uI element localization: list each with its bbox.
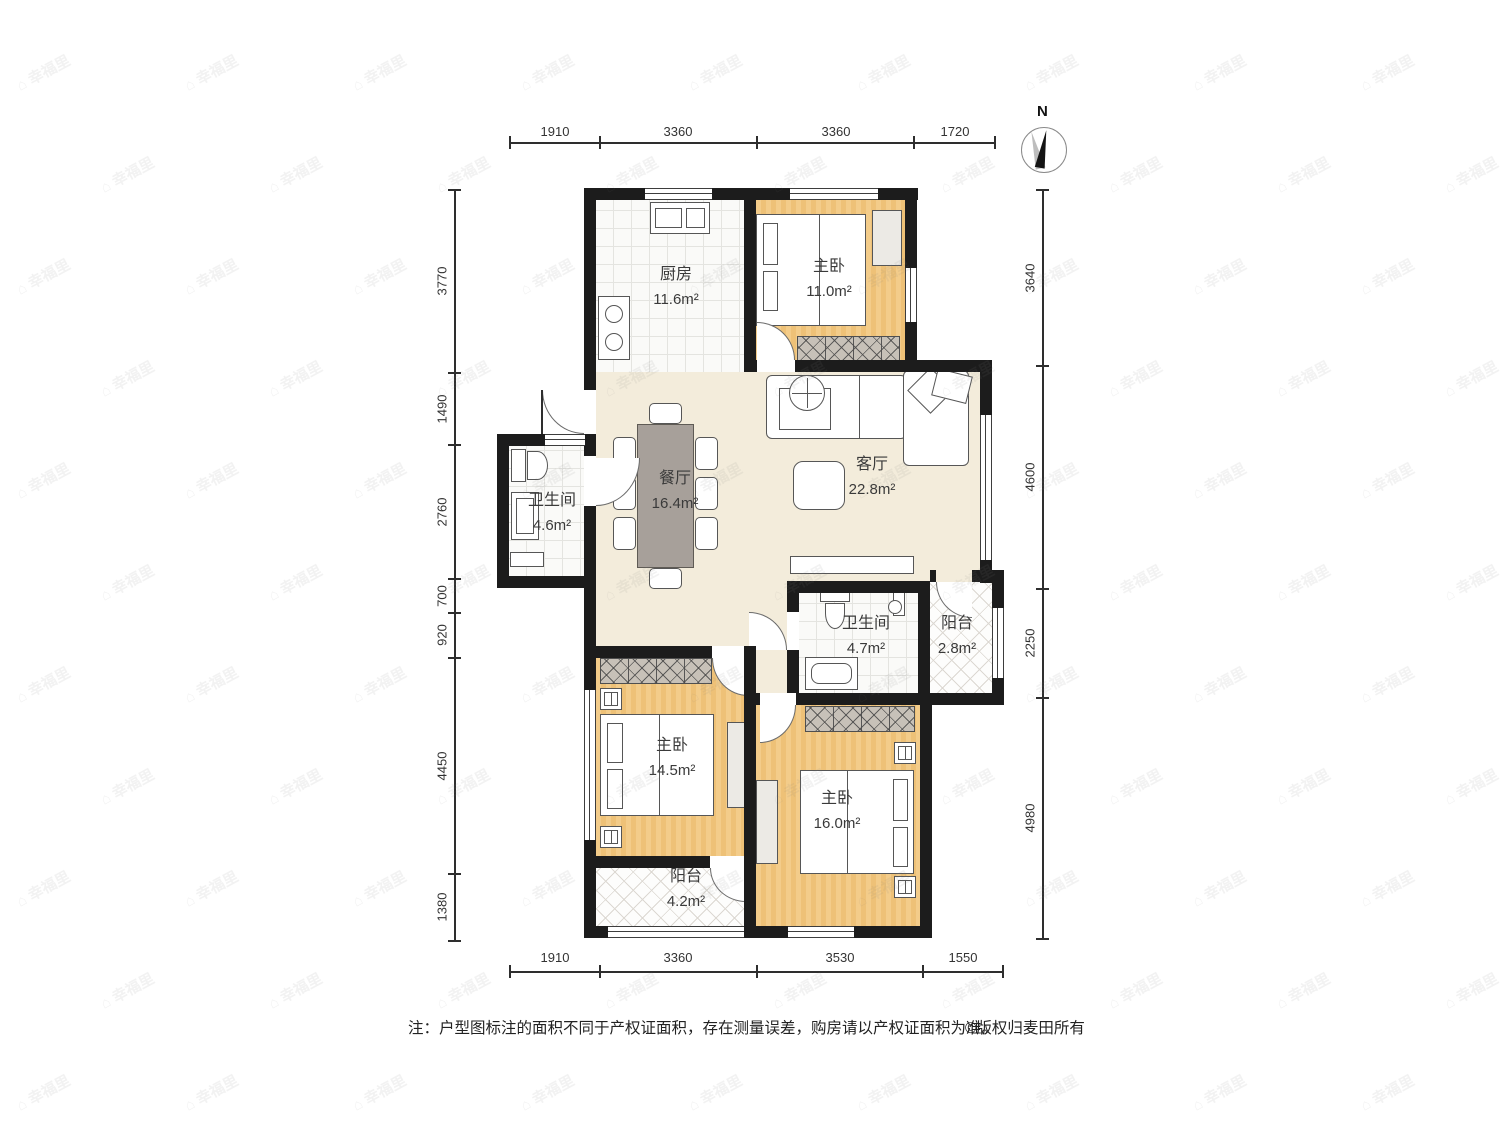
watermark-logo: ⌂ 幸福里 — [96, 356, 157, 402]
watermark-logo: ⌂ 幸福里 — [1272, 356, 1333, 402]
watermark-logo: ⌂ 幸福里 — [684, 1070, 745, 1116]
dim-line-left — [454, 190, 456, 941]
room-name: 阳台 — [667, 868, 705, 886]
window — [905, 268, 917, 322]
dim-tick — [1036, 588, 1049, 590]
wall — [918, 581, 930, 693]
toilet-icon — [511, 449, 526, 482]
dim-tick — [448, 189, 461, 191]
wall — [992, 570, 1004, 608]
watermark-logo: ⌂ 幸福里 — [936, 764, 997, 810]
room-label-bath-main: 卫生间 4.6m² — [528, 492, 576, 534]
watermark-logo: ⌂ 幸福里 — [264, 968, 325, 1014]
watermark-logo: ⌂ 幸福里 — [12, 458, 73, 504]
disclaimer-note: 注：户型图标注的面积不同于产权证面积，存在测量误差，购房请以产权证面积为准。 — [408, 1016, 997, 1038]
dim-tick — [599, 965, 601, 978]
room-area: 11.0m² — [806, 283, 852, 300]
watermark-logo: ⌂ 幸福里 — [264, 560, 325, 606]
dim-label: 3640 — [1023, 264, 1038, 293]
watermark-logo: ⌂ 幸福里 — [936, 968, 997, 1014]
watermark-logo: ⌂ 幸福里 — [768, 968, 829, 1014]
room-name: 客厅 — [849, 456, 896, 474]
watermark-logo: ⌂ 幸福里 — [12, 50, 73, 96]
watermark-logo: ⌂ 幸福里 — [1440, 560, 1500, 606]
plant-line — [792, 393, 822, 394]
floor-plan-image: 厨房 11.6m² 主卧 11.0m² 客厅 22.8m² 餐厅 16.4m² … — [0, 0, 1500, 1125]
window — [980, 415, 992, 560]
room-name: 厨房 — [653, 266, 699, 284]
dim-label: 3360 — [664, 950, 693, 965]
watermark-logo: ⌂ 幸福里 — [1356, 1070, 1417, 1116]
room-name: 主卧 — [649, 737, 696, 755]
wall — [584, 188, 596, 390]
watermark-logo: ⌂ 幸福里 — [1104, 560, 1165, 606]
chair-icon — [695, 437, 718, 470]
coffee-table-icon — [793, 461, 845, 510]
room-label-bedroom-right: 主卧 16.0m² — [814, 790, 861, 832]
wall — [497, 576, 596, 588]
watermark-logo: ⌂ 幸福里 — [1188, 50, 1249, 96]
wall — [744, 360, 757, 372]
dim-tick — [1036, 697, 1049, 699]
room-area: 4.7m² — [842, 640, 890, 657]
room-area: 4.6m² — [528, 517, 576, 534]
watermark-logo: ⌂ 幸福里 — [1440, 764, 1500, 810]
room-area: 14.5m² — [649, 762, 696, 779]
watermark-logo: ⌂ 幸福里 — [852, 50, 913, 96]
dim-label: 920 — [435, 624, 450, 646]
chair-icon — [695, 517, 718, 550]
compass-n-label: N — [1037, 103, 1048, 120]
watermark-logo: ⌂ 幸福里 — [1440, 968, 1500, 1014]
watermark-logo: ⌂ 幸福里 — [1188, 662, 1249, 708]
watermark-logo: ⌂ 幸福里 — [1272, 560, 1333, 606]
dim-label: 1380 — [435, 893, 450, 922]
watermark-logo: ⌂ 幸福里 — [1104, 152, 1165, 198]
dim-label: 1550 — [949, 950, 978, 965]
watermark-logo: ⌂ 幸福里 — [516, 254, 577, 300]
watermark-logo: ⌂ 幸福里 — [1188, 1070, 1249, 1116]
pillow — [763, 271, 778, 311]
wall — [744, 200, 756, 360]
sink-basin — [686, 208, 705, 228]
chair-icon — [649, 568, 682, 589]
dim-tick — [1002, 965, 1004, 978]
wall — [712, 188, 790, 200]
wall — [905, 322, 917, 360]
watermark-logo: ⌂ 幸福里 — [1440, 356, 1500, 402]
room-label-balcony-south: 阳台 4.2m² — [667, 868, 705, 910]
room-name: 阳台 — [938, 615, 976, 633]
room-label-bedroom-top: 主卧 11.0m² — [806, 258, 852, 300]
nightstand-icon — [894, 742, 916, 764]
watermark-logo: ⌂ 幸福里 — [96, 152, 157, 198]
watermark-logo: ⌂ 幸福里 — [516, 662, 577, 708]
room-label-balcony-east: 阳台 2.8m² — [938, 615, 976, 657]
window — [545, 434, 585, 446]
watermark-logo: ⌂ 幸福里 — [348, 458, 409, 504]
wall — [787, 581, 799, 612]
window — [790, 188, 878, 200]
wall — [787, 650, 799, 693]
room-name: 餐厅 — [652, 470, 699, 488]
watermark-logo: ⌂ 幸福里 — [1188, 254, 1249, 300]
nightstand-icon — [600, 688, 622, 710]
dim-tick — [509, 136, 511, 149]
room-area: 16.0m² — [814, 815, 861, 832]
room-area: 11.6m² — [653, 291, 699, 308]
watermark-logo: ⌂ 幸福里 — [1272, 152, 1333, 198]
room-label-living: 客厅 22.8m² — [849, 456, 896, 498]
room-area: 4.2m² — [667, 893, 705, 910]
dim-label: 700 — [435, 585, 450, 607]
dim-tick — [448, 612, 461, 614]
wardrobe-icon — [600, 658, 712, 684]
copyright-note: ©版权归麦田所有 — [965, 1016, 1085, 1038]
stove-icon — [598, 296, 630, 360]
watermark-logo: ⌂ 幸福里 — [96, 968, 157, 1014]
dim-label: 4600 — [1023, 463, 1038, 492]
burner — [605, 333, 623, 351]
wall — [744, 926, 788, 938]
washer-icon — [510, 552, 544, 567]
dim-tick — [994, 136, 996, 149]
dim-line-top — [510, 142, 995, 144]
dim-tick — [1036, 189, 1049, 191]
watermark-logo: ⌂ 幸福里 — [1188, 866, 1249, 912]
entry-door-leaf — [541, 390, 543, 434]
nightstand-icon — [894, 876, 916, 898]
watermark-logo: ⌂ 幸福里 — [432, 152, 493, 198]
pillow — [607, 723, 623, 763]
dim-label: 4450 — [435, 752, 450, 781]
wall — [930, 570, 936, 582]
room-name: 主卧 — [814, 790, 861, 808]
watermark-logo: ⌂ 幸福里 — [1104, 356, 1165, 402]
pillow — [763, 223, 778, 265]
wall — [746, 856, 756, 868]
chair-icon — [649, 403, 682, 424]
wall — [596, 646, 712, 658]
watermark-logo: ⌂ 幸福里 — [1020, 866, 1081, 912]
dim-tick — [1036, 365, 1049, 367]
watermark-logo: ⌂ 幸福里 — [180, 866, 241, 912]
closet-icon — [756, 780, 778, 864]
watermark-logo: ⌂ 幸福里 — [1356, 662, 1417, 708]
watermark-logo: ⌂ 幸福里 — [1188, 458, 1249, 504]
dim-label: 4980 — [1023, 804, 1038, 833]
sofa-divider — [859, 376, 860, 438]
watermark-logo: ⌂ 幸福里 — [852, 1070, 913, 1116]
wardrobe-icon — [797, 336, 900, 361]
room-name: 主卧 — [806, 258, 852, 276]
watermark-logo: ⌂ 幸福里 — [180, 50, 241, 96]
watermark-logo: ⌂ 幸福里 — [348, 866, 409, 912]
watermark-logo: ⌂ 幸福里 — [264, 152, 325, 198]
dim-label: 1720 — [941, 124, 970, 139]
burner — [605, 305, 623, 323]
wall — [920, 705, 932, 938]
dim-label: 3770 — [435, 267, 450, 296]
watermark-logo: ⌂ 幸福里 — [12, 1070, 73, 1116]
watermark-logo: ⌂ 幸福里 — [348, 254, 409, 300]
dim-tick — [756, 136, 758, 149]
watermark-logo: ⌂ 幸福里 — [1020, 50, 1081, 96]
dim-label: 1910 — [541, 124, 570, 139]
dim-label: 3360 — [822, 124, 851, 139]
wall — [584, 856, 710, 868]
watermark-logo: ⌂ 幸福里 — [1356, 50, 1417, 96]
sink-basin — [655, 208, 682, 228]
room-label-dining: 餐厅 16.4m² — [652, 470, 699, 512]
pillow — [893, 779, 908, 821]
watermark-logo: ⌂ 幸福里 — [1272, 968, 1333, 1014]
watermark-logo: ⌂ 幸福里 — [180, 662, 241, 708]
dim-tick — [448, 444, 461, 446]
watermark-logo: ⌂ 幸福里 — [1356, 458, 1417, 504]
wall — [744, 646, 756, 938]
watermark-logo: ⌂ 幸福里 — [1356, 254, 1417, 300]
nightstand-icon — [600, 826, 622, 848]
watermark-logo: ⌂ 幸福里 — [96, 764, 157, 810]
dim-tick — [509, 965, 511, 978]
watermark-logo: ⌂ 幸福里 — [12, 254, 73, 300]
wall — [905, 200, 917, 268]
dim-tick — [913, 136, 915, 149]
dim-tick — [448, 940, 461, 942]
watermark-logo: ⌂ 幸福里 — [1104, 968, 1165, 1014]
room-area: 2.8m² — [938, 640, 976, 657]
window — [584, 690, 596, 840]
watermark-logo: ⌂ 幸福里 — [516, 1070, 577, 1116]
wall — [584, 926, 608, 938]
dim-tick — [756, 965, 758, 978]
room-label-kitchen: 厨房 11.6m² — [653, 266, 699, 308]
watermark-logo: ⌂ 幸福里 — [684, 50, 745, 96]
wardrobe-icon — [805, 706, 915, 732]
wall — [584, 840, 596, 938]
dim-label: 1490 — [435, 395, 450, 424]
kitchen-sink-icon — [650, 202, 710, 234]
watermark-logo: ⌂ 幸福里 — [264, 764, 325, 810]
window — [788, 926, 854, 938]
bathtub-inner — [811, 663, 852, 684]
chair-icon — [613, 517, 636, 550]
room-area: 16.4m² — [652, 495, 699, 512]
watermark-logo: ⌂ 幸福里 — [432, 968, 493, 1014]
watermark-logo: ⌂ 幸福里 — [1356, 866, 1417, 912]
watermark-logo: ⌂ 幸福里 — [180, 254, 241, 300]
watermark-logo: ⌂ 幸福里 — [348, 50, 409, 96]
bathtub-icon — [805, 657, 858, 690]
wall — [918, 693, 1004, 705]
room-area: 22.8m² — [849, 481, 896, 498]
dim-label: 2250 — [1023, 629, 1038, 658]
watermark-logo: ⌂ 幸福里 — [348, 662, 409, 708]
dim-label: 3360 — [664, 124, 693, 139]
window — [645, 188, 712, 200]
dim-tick — [922, 965, 924, 978]
entry-door-arc — [542, 390, 584, 434]
watermark-logo: ⌂ 幸福里 — [1020, 1070, 1081, 1116]
dim-label: 1910 — [541, 950, 570, 965]
dim-tick — [448, 873, 461, 875]
room-label-bath-second: 卫生间 4.7m² — [842, 615, 890, 657]
room-name: 卫生间 — [842, 615, 890, 633]
watermark-logo: ⌂ 幸福里 — [12, 866, 73, 912]
wall — [878, 188, 918, 200]
plant-icon — [789, 375, 825, 411]
watermark-logo: ⌂ 幸福里 — [516, 50, 577, 96]
window — [992, 608, 1004, 678]
room-name: 卫生间 — [528, 492, 576, 510]
wall — [787, 581, 918, 593]
dim-tick — [448, 372, 461, 374]
wall — [795, 360, 992, 372]
watermark-logo: ⌂ 幸福里 — [516, 866, 577, 912]
watermark-logo: ⌂ 幸福里 — [1104, 764, 1165, 810]
watermark-logo: ⌂ 幸福里 — [936, 152, 997, 198]
dim-tick — [448, 657, 461, 659]
dim-tick — [1036, 938, 1049, 940]
watermark-logo: ⌂ 幸福里 — [180, 1070, 241, 1116]
wall — [980, 372, 992, 415]
dim-line-right — [1042, 190, 1044, 939]
watermark-logo: ⌂ 幸福里 — [12, 662, 73, 708]
room-label-bedroom-left: 主卧 14.5m² — [649, 737, 696, 779]
dim-label: 2760 — [435, 498, 450, 527]
dim-label: 3530 — [826, 950, 855, 965]
pillow — [893, 827, 908, 867]
dim-tick — [599, 136, 601, 149]
watermark-logo: ⌂ 幸福里 — [1272, 764, 1333, 810]
watermark-logo: ⌂ 幸福里 — [264, 356, 325, 402]
watermark-logo: ⌂ 幸福里 — [180, 458, 241, 504]
window — [608, 926, 750, 938]
toilet-bowl — [527, 451, 548, 480]
watermark-logo: ⌂ 幸福里 — [600, 968, 661, 1014]
desk-icon — [872, 210, 902, 266]
sofa-icon — [766, 375, 907, 439]
wall — [584, 506, 596, 690]
shower-head — [888, 600, 902, 614]
watermark-logo: ⌂ 幸福里 — [96, 560, 157, 606]
pillow — [607, 769, 623, 809]
wall — [497, 434, 509, 588]
watermark-logo: ⌂ 幸福里 — [1440, 152, 1500, 198]
watermark-logo: ⌂ 幸福里 — [1020, 662, 1081, 708]
wall — [796, 693, 918, 705]
dim-tick — [448, 578, 461, 580]
tv-cabinet-icon — [790, 556, 914, 574]
wall — [584, 434, 596, 456]
watermark-logo: ⌂ 幸福里 — [348, 1070, 409, 1116]
